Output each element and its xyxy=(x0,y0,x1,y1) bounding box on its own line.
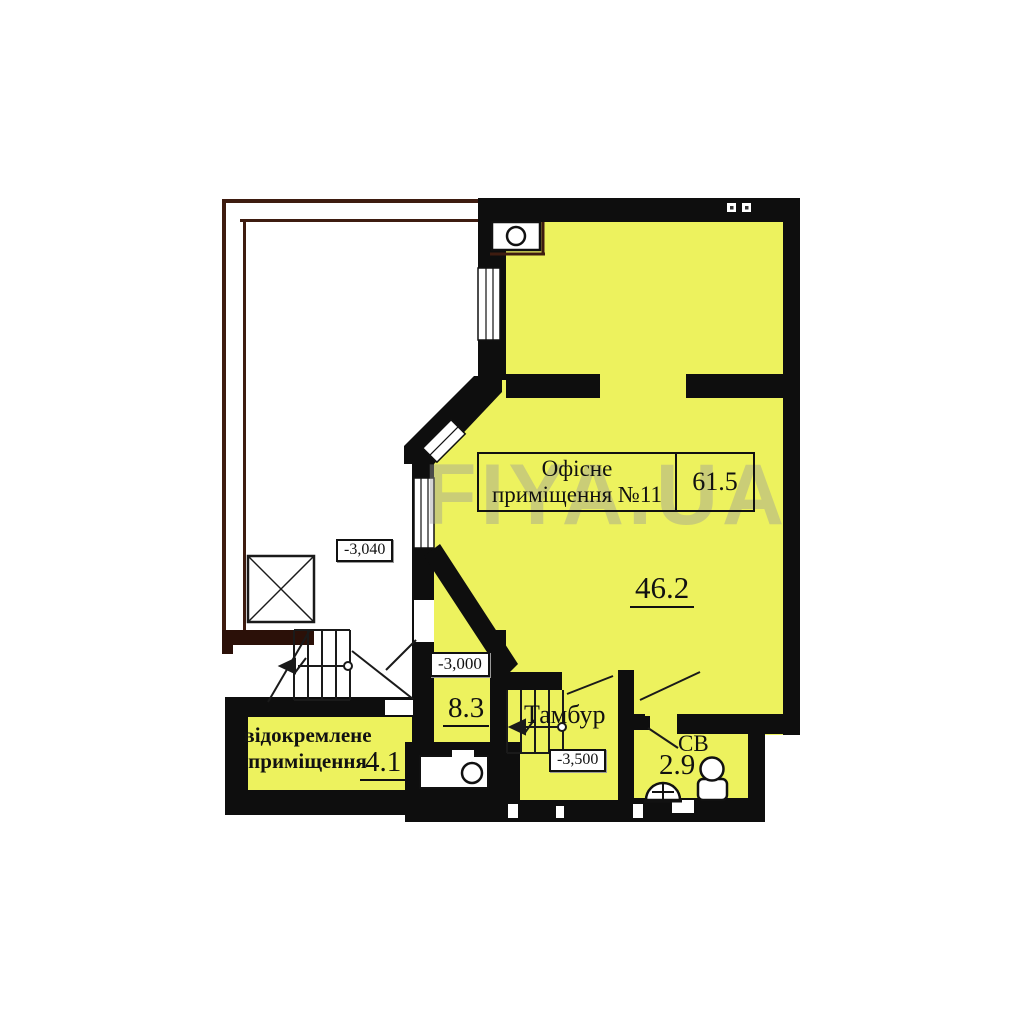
toilet-icon xyxy=(698,758,727,801)
office-name-label: Офісне приміщення №11 xyxy=(479,454,675,510)
detached-name-line2: приміщення xyxy=(248,749,367,773)
hatch-box-icon xyxy=(248,556,314,622)
vent-shaft-icon xyxy=(490,222,545,254)
title-block: Офісне приміщення №11 61.5 xyxy=(477,452,755,512)
tambour-name-label: Тамбур xyxy=(524,700,605,730)
room-8-3-elevation-label: -3,000 xyxy=(430,652,490,677)
bathroom-area-label: 2.9 xyxy=(659,749,695,782)
detached-name-label: відокремлене приміщення xyxy=(240,722,375,775)
office-name-line2: приміщення №11 xyxy=(492,482,662,508)
tambour-elevation-label: -3,500 xyxy=(549,749,606,772)
office-area-label: 46.2 xyxy=(630,570,694,608)
detached-area-label: 4.1 xyxy=(360,746,406,781)
room-8-3-area-label: 8.3 xyxy=(443,692,489,727)
office-name-line1: Офісне xyxy=(542,456,613,482)
floor-plan-canvas: FIYA.UA Офісне приміщення №11 61.5 46.2 … xyxy=(0,0,1024,1024)
terrace-elevation-label: -3,040 xyxy=(336,539,393,562)
entry-niche xyxy=(420,750,488,788)
detached-name-line1: відокремлене xyxy=(243,723,371,747)
office-total-area: 61.5 xyxy=(675,454,753,510)
